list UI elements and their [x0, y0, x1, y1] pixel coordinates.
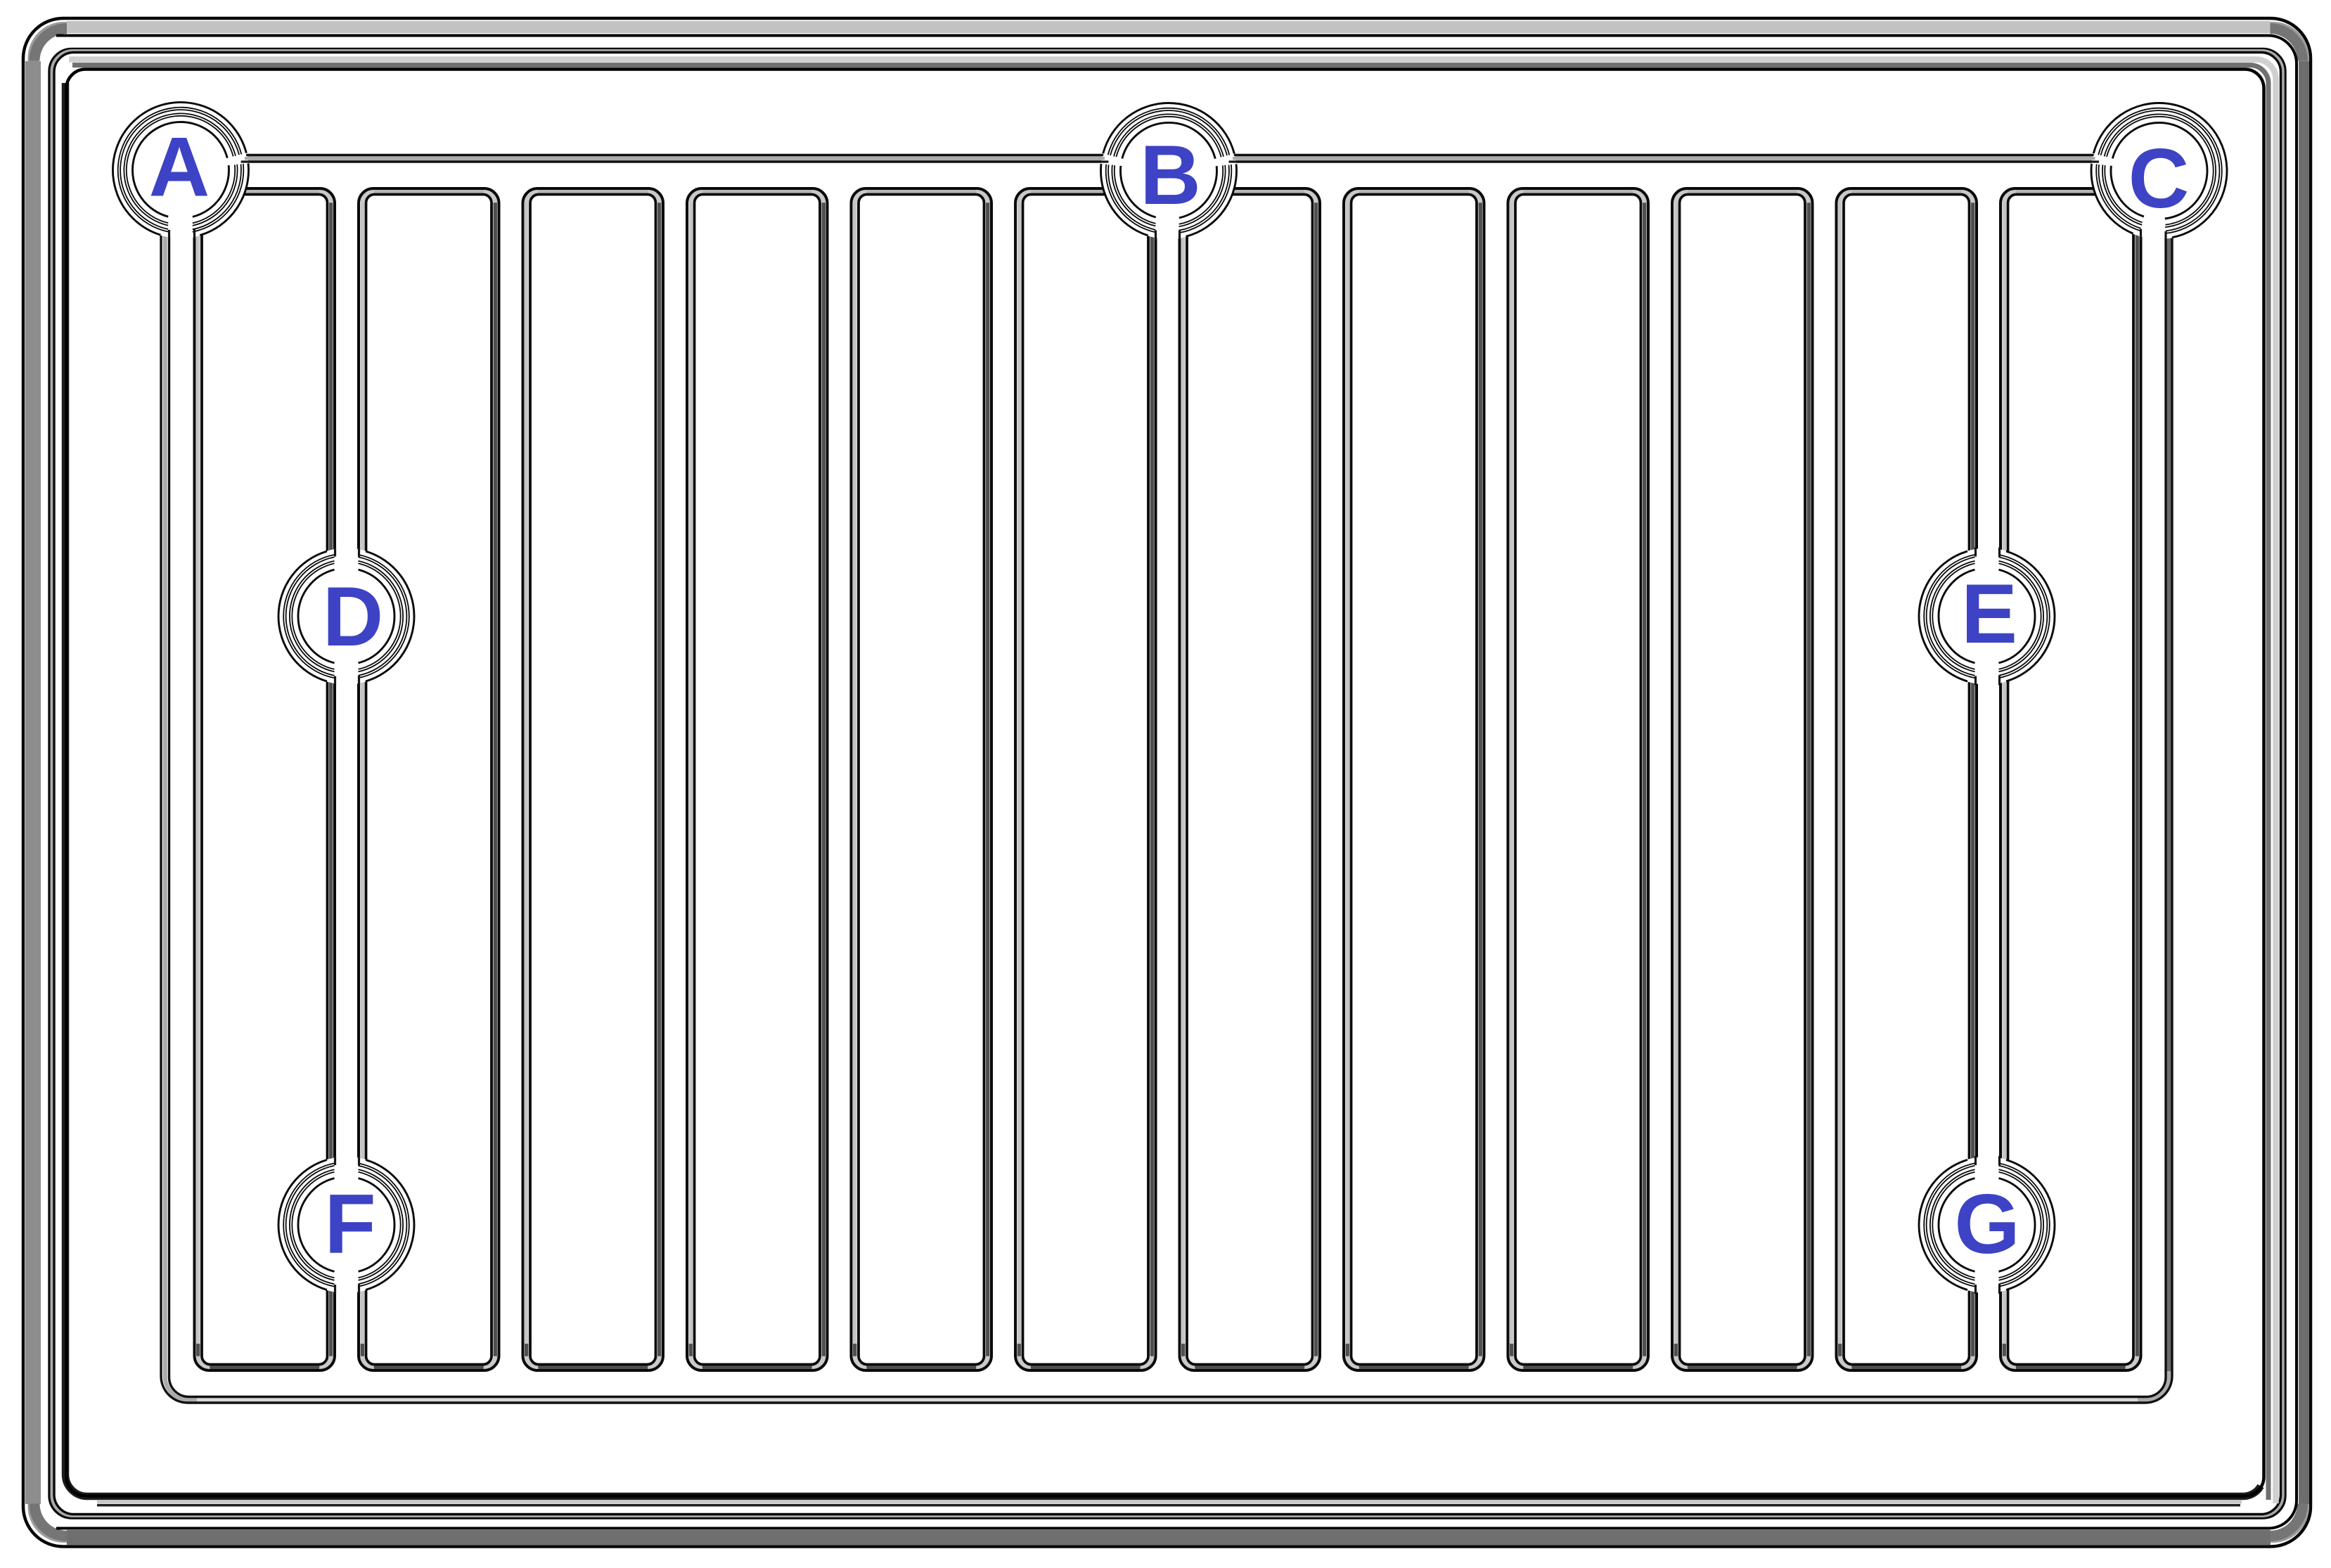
svg-text:C: C — [2128, 131, 2190, 226]
svg-text:G: G — [1954, 1177, 2019, 1271]
svg-text:D: D — [323, 570, 384, 664]
svg-text:F: F — [324, 1177, 375, 1271]
svg-text:E: E — [1961, 567, 2017, 661]
svg-text:B: B — [1140, 128, 1201, 222]
svg-text:A: A — [149, 120, 210, 214]
